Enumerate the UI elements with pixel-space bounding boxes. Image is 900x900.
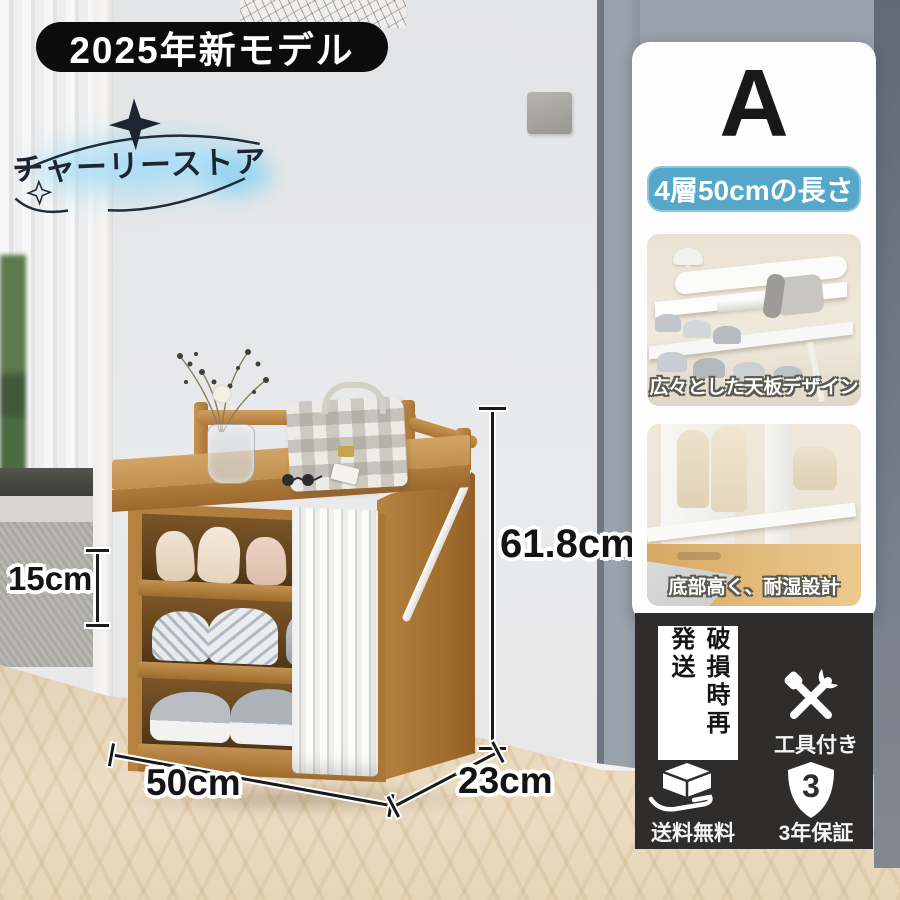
pleated-curtain-door (292, 507, 378, 777)
tools-label: 工具付き (761, 729, 871, 759)
white-rose (213, 385, 231, 403)
dim-label-tier-height: 15cm (8, 560, 92, 598)
folded-boot (793, 446, 837, 490)
light-switch (527, 92, 572, 134)
shoe (657, 352, 687, 372)
new-model-badge: 2025年新モデル (36, 22, 388, 72)
shoe-rack-side-panel (377, 462, 475, 782)
heel-shoe (154, 531, 195, 582)
reship-card: 破損時再発送 (658, 626, 738, 760)
free-shipping-icon (647, 761, 725, 817)
new-model-badge-label: 2025年新モデル (69, 20, 354, 74)
shoe (683, 320, 711, 338)
spec-badge-label: 4層50cmの長さ (654, 169, 853, 209)
feature-caption: 底部高く、耐湿設計 (647, 572, 861, 599)
dim-label-total-height: 61.8cm (500, 522, 636, 567)
feature-photo-top-board: 広々とした天板デザイン (647, 234, 861, 406)
tools-icon (778, 665, 842, 729)
store-logo: チャーリーストア (6, 91, 280, 220)
cream-boot (711, 426, 747, 512)
warranty-shield-icon: 3 (785, 761, 837, 819)
glass-vase (207, 424, 255, 484)
window-greenery (0, 255, 26, 475)
dim-line-15cm (96, 549, 99, 627)
table-lamp (673, 248, 703, 265)
plaid-sneaker (208, 606, 278, 665)
sunglasses (278, 472, 324, 486)
shoe (713, 326, 741, 344)
cream-boot (677, 430, 709, 508)
feature-caption: 広々とした天板デザイン (647, 372, 861, 399)
handbag-handle (322, 382, 386, 414)
store-name: チャーリーストア (12, 136, 268, 190)
right-wall-edge (874, 0, 900, 868)
variant-letter: A (632, 56, 876, 152)
feature-photo-bottom: 底部高く、耐湿設計 (647, 424, 861, 606)
service-panel: 破損時再発送 工具付き 送料無料 3 3年保証 (635, 613, 873, 849)
plaid-sneaker (152, 610, 210, 663)
window-sill (0, 468, 96, 496)
variant-info-panel: A 4層50cmの長さ 広々とした天板デザイン (632, 42, 876, 622)
product-image: 15cm 61.8cm 50cm 23cm 2025年新モデル チャーリーストア… (0, 0, 900, 900)
dim-line-61-8cm (491, 407, 494, 750)
spec-badge: 4層50cmの長さ (647, 166, 861, 212)
reship-label: 破損時再発送 (663, 626, 733, 760)
handbag-clasp (338, 446, 354, 457)
dried-flowers (158, 342, 288, 434)
heel-shoe (197, 525, 242, 585)
warranty-number: 3 (785, 768, 837, 805)
shoe (655, 314, 681, 332)
dim-label-width: 50cm (146, 762, 241, 804)
left-room-floor (0, 496, 96, 524)
rack-leg-right (765, 424, 791, 556)
leg-shadow (677, 552, 721, 560)
warranty-label: 3年保証 (761, 817, 871, 847)
nike-sneaker (150, 690, 230, 743)
heel-shoe (245, 537, 287, 585)
dim-label-depth: 23cm (458, 760, 553, 802)
free-shipping-label: 送料無料 (637, 817, 749, 847)
